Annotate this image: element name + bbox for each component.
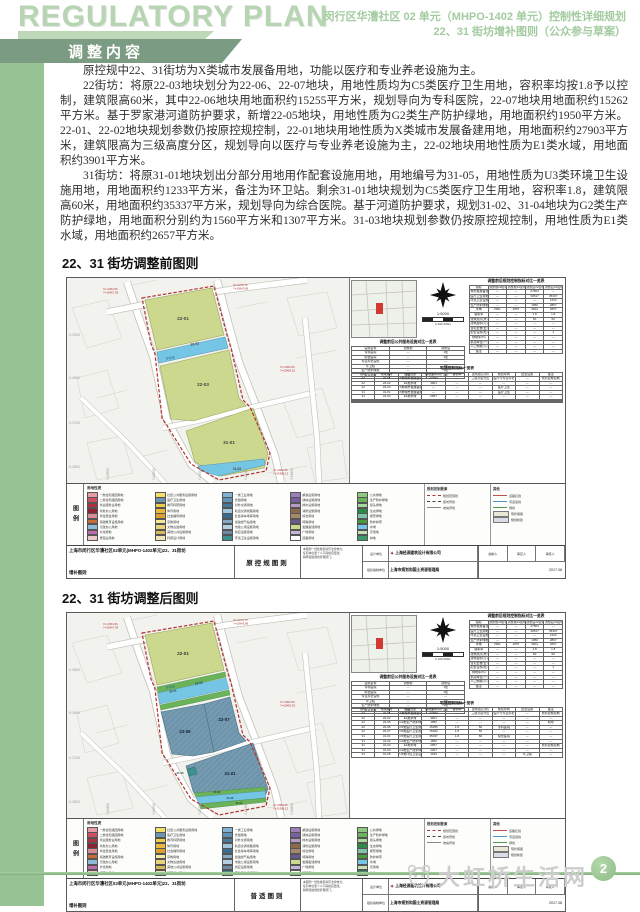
legend-item-label: 其他公共设施用地: [167, 530, 191, 534]
table-cell: 按原控规控制: [539, 712, 563, 717]
table-cell: —: [492, 753, 515, 758]
legend-control-title: 规划控制要素: [427, 486, 489, 491]
legend-line-label: 规划新建: [511, 853, 523, 857]
legend-line-label: 现状保留: [511, 847, 523, 851]
legend-item: 旅馆业用地: [87, 535, 152, 540]
svg-text:Y-16200: Y-16200: [198, 468, 202, 480]
table-cell: C5类医疗卫生用地: [398, 725, 421, 730]
legend-item-label: 基础教育设施用地: [100, 855, 124, 859]
table-cell: —: [539, 753, 563, 758]
legend-other-title: 其他: [493, 486, 564, 491]
map-legend: 图例 用地性质 一类住宅组团用地二类住宅组团用地商业服务业用地商务办公用地商住混…: [67, 483, 565, 545]
design-unit-value: ✦上海经源建筑设计有限公司: [389, 546, 478, 562]
table-cell: [398, 402, 421, 403]
table-cell: 机动车位(个): [470, 340, 489, 345]
table-row: 备注————: [470, 684, 563, 689]
plan-drawing-after-svg: 22-01 22-05 22-02 22-06 22-07 31-01 31-0…: [67, 613, 349, 818]
table-cell: 三级高度分区: [469, 377, 492, 382]
table-cell: 建筑面积(万㎡): [470, 657, 489, 662]
svg-text:22-07: 22-07: [218, 717, 230, 722]
legend-item-label: 加油加气站用地: [235, 855, 256, 859]
legend-item-label: 水域: [370, 860, 376, 864]
table-cell: —: [445, 753, 468, 758]
legend-item-label: 社会福利用地: [167, 514, 185, 518]
legend-item-label: 消防设施用地: [302, 844, 320, 848]
legend-item-label: 文物古迹用地: [167, 525, 185, 529]
table-row: 专科医院—1处: [352, 686, 465, 691]
staff-label-cell: 编制人: [479, 546, 508, 562]
table-cell: 环境卫生设施用地: [470, 299, 489, 304]
legend-item-label: 防护林带: [370, 855, 382, 859]
table-header-cell: 调整前31街坊: [507, 285, 526, 290]
table-header-cell: 用地面积(㎡): [422, 707, 445, 712]
body-paragraph: 31街坊：将原31-01地块划出分部分用地用作配套设施用地，用地编号为31-05…: [60, 169, 628, 244]
svg-text:Y-16200: Y-16200: [198, 803, 202, 815]
svg-text:Y=15643.89: Y=15643.89: [233, 622, 249, 626]
sheet-date: 2017.08: [479, 895, 565, 911]
note-line: 解释权属规划管理部门。: [303, 889, 360, 893]
legend-item-label: 广场用地: [302, 865, 314, 869]
table-row: 3131-05U3类环境卫生设施用地1233———环卫站—: [352, 753, 563, 758]
title-block-project: 上海市闵行区华漕社区02单元(MHPO-1402单元)22、31街坊 增补图则: [67, 546, 235, 578]
table-cell: 绿地率(%): [470, 336, 489, 341]
table-cell: —: [507, 684, 526, 689]
svg-text:Y=15467.09: Y=15467.09: [103, 291, 119, 295]
legend-other-items: 道路红线河道蓝线绿线现状保留规划新建: [493, 493, 564, 523]
legend-item-label: 轨道交通线路用地: [235, 509, 259, 513]
legend-line-label: 河道蓝线: [509, 835, 521, 839]
table-cell: 城市发展备建用地: [470, 625, 489, 630]
legend-item-label: 社会停车场库用地: [235, 849, 259, 853]
legend-swatch: [290, 535, 301, 541]
title-block: 上海市闵行区华漕社区02单元(MHPO-1402单元)22、31街坊 增补图则 …: [67, 545, 565, 578]
page-title: REGULATORY PLAN: [18, 0, 329, 34]
table-cell: 建筑面积(万㎡): [470, 322, 489, 327]
legend-swatch: [87, 535, 98, 541]
legend-line-label: 规划新建: [511, 518, 523, 522]
legend-line-label: 道路红线: [509, 829, 521, 833]
table-header-cell: 建筑限高(米): [469, 372, 492, 377]
legend-line-item: 地块界线: [427, 505, 489, 511]
table-cell: 住宅套数(套): [470, 661, 489, 666]
project-name: 上海市闵行区华漕社区02单元(MHPO-1402单元)22、31街坊: [69, 548, 232, 554]
legend-item-label: 公共绿地: [370, 493, 382, 497]
subtitle-line-1: 闵行区华漕社区 02 单元（MHPO-1402 单元）控制性详细规划: [323, 10, 626, 25]
legend-item-label: 商业服务业用地: [100, 503, 121, 507]
legend-line-sample: [427, 501, 441, 502]
legend-item-label: 综合用地: [302, 514, 314, 518]
legend-other-items: 道路红线河道蓝线绿线现状保留规划新建: [493, 828, 564, 858]
legend-item-label: 农用地: [370, 530, 379, 534]
legend-line-sample: [427, 830, 441, 831]
table-cell: 按原控规控制: [539, 744, 563, 749]
block-table-block: 地块控制指标一览表 街坊地块编号用地性质用地面积(㎡)容积率建筑限高(米)规划导…: [351, 701, 563, 816]
legend-item-label: 公共绿地: [370, 828, 382, 832]
legend-line-item: 规划新建: [493, 852, 564, 858]
legend-item-label: 商住混合用地: [100, 514, 118, 518]
svg-text:X-2700: X-2700: [69, 756, 80, 760]
plan-drawing-before-svg: 22-01 22-02 22-03 31-01 31-03 罗家港 X-2500…: [67, 278, 349, 483]
legend-title: 图例: [67, 484, 84, 545]
north-arrow-block: 1:5000 0 100 200m: [419, 280, 467, 338]
title-block-notes: 本图则一经批准即具有法律效力， 任何单位和个人不得擅自更改。 解释权属规划管理部…: [301, 879, 363, 911]
table-cell: 城市发展备建用地: [470, 290, 489, 295]
scale-ticks: 0 100 200m: [419, 657, 467, 661]
legend-item-label: 农用地: [370, 865, 379, 869]
legend-item-label: 特殊用地: [302, 855, 314, 859]
legend-item: 道路用地: [290, 535, 355, 540]
table-cell: 按原控规控制: [539, 377, 563, 382]
table-header-cell: 调整前31街坊: [507, 620, 526, 625]
title-underline-bar: [18, 31, 214, 40]
table-cell: 环境卫生设施用地: [470, 634, 489, 639]
table-cell: 建筑限高(米): [470, 652, 489, 657]
scale-ticks: 0 100 200m: [419, 322, 467, 326]
watermark-text: 大虹桥生活网: [438, 860, 588, 892]
table-header-cell: 调整前22街坊: [488, 285, 507, 290]
plan-drawing-before: 22-01 22-02 22-03 31-01 31-03 罗家港 X-2500…: [67, 278, 350, 483]
table-cell: [422, 402, 445, 403]
legend-title: 图例: [67, 819, 84, 880]
svg-text:X-2600: X-2600: [69, 711, 80, 715]
svg-text:31-03: 31-03: [233, 467, 241, 471]
legend-landuse-title: 用地性质: [87, 821, 422, 826]
legend-item-label: 通信设施用地: [302, 498, 320, 502]
legend-line-label: 地块界线: [443, 506, 455, 510]
legend-item-label: 商务办公用地: [100, 844, 118, 848]
compare-table-block: 调整前后规划控制指标对比一览表 指标调整前22街坊调整前31街坊调整后22街坊调…: [469, 614, 563, 689]
design-unit-label: 设计单位: [363, 546, 389, 562]
legend-line-sample: [493, 517, 509, 523]
svg-text:22-03: 22-03: [197, 382, 209, 387]
org-unit-value: 上海市规划和国土资源管理局: [389, 895, 478, 911]
project-name: 上海市闵行区华漕社区02单元(MHPO-1402单元)22、31街坊: [69, 881, 232, 887]
legend-line-label: 绿线: [509, 841, 515, 845]
legend-item-label: 一类工业用地: [235, 828, 253, 832]
title-block-notes: 本图则一经批准即具有法律效力， 任何单位和个人不得擅自更改。 解释权属规划管理部…: [301, 546, 363, 578]
legend-line-sample: [427, 495, 441, 496]
legend-item-label: 宗教用地: [167, 855, 179, 859]
org-unit-label: 组织编制单位: [363, 895, 389, 911]
legend-item-label: 排水设施用地: [302, 838, 320, 842]
svg-text:Y-16000: Y-16000: [152, 468, 156, 480]
table-cell: 人口规模(人): [470, 345, 489, 350]
legend-line-label: 规划范围线: [443, 494, 458, 498]
table-cell: [445, 402, 468, 403]
svg-text:Y=15386.12: Y=15386.12: [273, 472, 289, 476]
svg-text:X-2600: X-2600: [69, 376, 80, 380]
table-cell: —: [507, 349, 526, 354]
legend-line-label: 街坊界线: [443, 500, 455, 504]
table-header-cell: 建筑限高(米): [469, 707, 492, 712]
legend-item-label: 基础教育设施用地: [100, 520, 124, 524]
content-area: 原控规中22、31街坊为X类城市发展备用地，功能以医疗和专业养老设施为主。 22…: [60, 64, 628, 912]
title-block-orgs: 设计单位 ✦上海经源建筑设计有限公司 组织编制单位 上海市规划和国土资源管理局: [363, 546, 479, 578]
scale-label: 1:5000: [419, 646, 467, 651]
design-unit-label: 设计单位: [363, 879, 389, 895]
legend-item-label: 商住混合用地: [100, 849, 118, 853]
legend-line-label: 道路红线: [509, 494, 521, 498]
legend-item-label: 仓储用地: [235, 498, 247, 502]
svg-text:X-2800: X-2800: [69, 465, 80, 469]
legend-item-label: 医疗卫生用地: [167, 833, 185, 837]
legend-item-label: 文物古迹用地: [167, 860, 185, 864]
legend-chip-grid: 一类住宅组团用地二类住宅组团用地商业服务业用地商务办公用地商住混合用地基础教育设…: [87, 827, 422, 877]
org-unit-value: 上海市规划和国土资源管理局: [389, 562, 478, 578]
legend-item-label: 其他公共设施用地: [167, 865, 191, 869]
legend-line-sample: [493, 507, 507, 508]
plan-subtitle: 闵行区华漕社区 02 单元（MHPO-1402 单元）控制性详细规划 22、31…: [323, 10, 626, 40]
legend-item-label: 仓储用地: [235, 833, 247, 837]
legend-control-group: 规划控制要素 规划范围线街坊界线地块界线: [424, 484, 490, 545]
scale-label: 1:5000: [419, 311, 467, 316]
legend-item: 林地: [357, 535, 422, 540]
block-control-table: 街坊地块编号用地性质用地面积(㎡)容积率建筑限高(米)规划导向配套设施备注222…: [351, 707, 563, 759]
block-table-block: 地块控制指标一览表 街坊地块编号用地性质用地面积(㎡)容积率建筑限高(米)规划导…: [351, 366, 563, 481]
svg-text:Y-15800: Y-15800: [106, 803, 110, 815]
legend-item-label: 科研设计用地: [167, 536, 185, 540]
design-logo-icon: ✦: [390, 551, 394, 557]
svg-text:22-01: 22-01: [177, 316, 189, 321]
svg-text:Y-15800: Y-15800: [106, 468, 110, 480]
section-heading-after: 22、31 街坊调整后图则: [62, 588, 628, 607]
legend-swatch: [222, 535, 233, 541]
table-cell: 医疗卫生用地: [470, 629, 489, 634]
legend-chip-grid: 一类住宅组团用地二类住宅组团用地商业服务业用地商务办公用地商住混合用地基础教育设…: [87, 492, 422, 542]
svg-text:Y-16000: Y-16000: [152, 803, 156, 815]
legend-item-label: 文化用地: [100, 865, 112, 869]
svg-text:X-2800: X-2800: [69, 800, 80, 804]
legend-item-label: 二类住宅组团用地: [100, 498, 124, 502]
table-cell: 配套设施(处): [470, 331, 489, 336]
table-cell: 生产防护绿地: [470, 638, 489, 643]
table-cell: X类城市发展备建用地: [398, 377, 421, 382]
svg-text:X-2500: X-2500: [69, 668, 80, 672]
map-right-panel: 1:5000 0 100 200m 调整前后规划控制指标对比一览表 指标调整前2…: [349, 278, 565, 483]
table-cell: C5类医疗卫生用地: [398, 730, 421, 735]
legend-swatch: [155, 535, 166, 541]
sheet-date: 2017.08: [479, 562, 565, 578]
legend-line-label: 街坊界线: [443, 835, 455, 839]
table-header-cell: 用地面积(㎡): [422, 372, 445, 377]
legend-item-label: 广场用地: [302, 530, 314, 534]
legend-landuse-title: 用地性质: [87, 486, 422, 491]
legend-item-label: 市政公用设施用地: [235, 525, 259, 529]
legend-other-title: 其他: [493, 821, 564, 826]
table-cell: 医疗与专业养老: [492, 712, 515, 717]
legend-item-label: 防护林带: [370, 520, 382, 524]
table-row: 备注————: [470, 349, 563, 354]
table-cell: [352, 402, 375, 403]
north-arrow-icon: [428, 615, 458, 645]
table-cell: —: [488, 349, 507, 354]
legend-item-label: 轨道交通线路用地: [235, 844, 259, 848]
title-block-staff: 编制人审定人审核人 2017.08: [479, 546, 565, 578]
legend-item-label: 水域: [370, 525, 376, 529]
table-cell: [539, 402, 563, 403]
legend-line-label: 绿线: [509, 506, 515, 510]
north-arrow-block: 1:5000 0 100 200m: [419, 615, 467, 673]
title-block-project: 上海市闵行区华漕社区02单元(MHPO-1402单元)22、31街坊 增补图则: [67, 879, 235, 911]
table-cell: X类城市发展备用地: [398, 386, 421, 391]
staff-label-cell: 审核人: [536, 546, 565, 562]
legend-line-sample: [493, 501, 507, 502]
legend-item-label: 一类住宅组团用地: [100, 493, 124, 497]
legend-item-label: 邮政设施用地: [302, 828, 320, 832]
legend-swatch: [357, 535, 368, 541]
legend-line-sample: [427, 836, 441, 837]
watermark: 大虹桥生活网: [406, 860, 588, 892]
legend-line-label: 河道蓝线: [509, 500, 521, 504]
body-paragraph: 22街坊：将原22-03地块划分为22-06、22-07地块，用地性质均为C5类…: [60, 79, 628, 169]
note-line: 解释权属规划管理部门。: [303, 556, 360, 560]
legend-item-label: 社区公共服务设施用地: [167, 828, 197, 832]
svg-text:Y-16400: Y-16400: [244, 468, 248, 480]
locator-highlight: [376, 303, 383, 314]
svg-text:Y=15643.89: Y=15643.89: [233, 287, 249, 291]
legend-item-label: 二类住宅组团用地: [100, 833, 124, 837]
legend-line-sample: [493, 852, 509, 858]
legend-line-sample: [427, 507, 441, 508]
project-subname: 增补图则: [69, 570, 87, 576]
legend-item-label: 体育用地: [167, 844, 179, 848]
org-unit-label: 组织编制单位: [363, 562, 389, 578]
page-number-badge: 2: [591, 856, 616, 881]
table-cell: 医疗卫生用地: [470, 294, 489, 299]
table-cell: 31-05: [375, 753, 398, 758]
legend-item-label: 生态绿地: [370, 509, 382, 513]
legend-line-sample: [493, 495, 507, 496]
svg-text:Y-16400: Y-16400: [244, 803, 248, 815]
table-cell: X类城市发展备用地: [398, 390, 421, 395]
legend-item-label: 社区公共服务设施用地: [167, 493, 197, 497]
staff-label-cell: 审定人: [508, 546, 537, 562]
legend-landuse-group: 用地性质 一类住宅组团用地二类住宅组团用地商业服务业用地商务办公用地商住混合用地…: [84, 484, 424, 545]
legend-item-label: 文化用地: [100, 530, 112, 534]
table-cell: X类城市发展备建用地: [398, 712, 421, 717]
svg-text:31-04: 31-04: [236, 801, 243, 805]
table-header-cell: 调整前22街坊: [488, 620, 507, 625]
legend-line-label: 地块界线: [443, 841, 455, 845]
table-cell: —: [544, 349, 563, 354]
legend-line-sample: [493, 842, 507, 843]
legend-item-label: 供应设施用地: [235, 865, 253, 869]
locator-map: [351, 615, 417, 673]
legend-line-label: 现状保留: [511, 512, 523, 516]
compare-table-block: 调整前后规划控制指标对比一览表 指标调整前22街坊调整前31街坊调整后22街坊调…: [469, 279, 563, 354]
legend-item-label: 供应设施用地: [235, 530, 253, 534]
svg-text:Y-16600: Y-16600: [290, 803, 294, 815]
svg-text:Y=15467.09: Y=15467.09: [103, 626, 119, 630]
legend-item-label: 生产防护绿地: [370, 833, 388, 837]
legend-control-items: 规划范围线街坊界线地块界线: [427, 828, 489, 846]
map-sheet-before: 22-01 22-02 22-03 31-01 31-03 罗家港 X-2500…: [66, 277, 566, 579]
table-row: [352, 402, 563, 403]
table-header-cell: 调整后31街坊: [544, 620, 563, 625]
legend-landuse-group: 用地性质 一类住宅组团用地二类住宅组团用地商业服务业用地商务办公用地商住混合用地…: [84, 819, 424, 880]
map-right-panel: 1:5000 0 100 200m 调整前后规划控制指标对比一览表 指标调整前2…: [349, 613, 565, 818]
table-cell: 备注: [470, 684, 489, 689]
table-cell: C5类医疗卫生用地: [398, 735, 421, 740]
legend-item-label: 一类工业用地: [235, 493, 253, 497]
legend-item-label: 生态绿地: [370, 844, 382, 848]
svg-text:31-02: 31-02: [214, 790, 221, 794]
legend-item-label: 医疗卫生用地: [167, 498, 185, 502]
legend-item-label: 发展备建用地: [302, 525, 320, 529]
legend-control-title: 规划控制要素: [427, 821, 489, 826]
legend-item-label: 街头绿地: [370, 838, 382, 842]
table-cell: G2类生产防护绿地: [398, 739, 421, 744]
svg-text:Y-16600: Y-16600: [290, 468, 294, 480]
legend-item-label: 邮政设施用地: [302, 493, 320, 497]
table-cell: —: [544, 684, 563, 689]
legend-item-label: 教育科研用地: [167, 838, 185, 842]
sheet-type: 普适图则: [235, 879, 301, 911]
legend-line-item: 地块界线: [427, 840, 489, 846]
plan-drawing-after: 22-01 22-05 22-02 22-06 22-07 31-01 31-0…: [67, 613, 350, 818]
legend-item-label: 行政办公用地: [100, 860, 118, 864]
legend-item-label: 市政公用设施用地: [235, 860, 259, 864]
legend-item-label: 体育用地: [167, 509, 179, 513]
legend-item-label: 街头绿地: [370, 503, 382, 507]
table-cell: 人口规模(人): [470, 680, 489, 685]
table-row: 综合医院—1处: [352, 355, 465, 360]
legend-item-label: 行政办公用地: [100, 525, 118, 529]
legend-item: 环境卫生设施用地: [222, 535, 287, 540]
table-header-cell: 调整后22街坊: [525, 285, 544, 290]
table-cell: U3类环境卫生设施用地: [398, 753, 421, 758]
legend-item-label: 特殊用地: [302, 520, 314, 524]
legend-line-sample: [493, 830, 507, 831]
legend-item-label: 宗教用地: [167, 520, 179, 524]
legend-item-label: 商业服务业用地: [100, 838, 121, 842]
svg-text:22-06: 22-06: [179, 729, 191, 734]
legend-item-label: 商务办公用地: [100, 509, 118, 513]
legend-other-group: 其他 道路红线河道蓝线绿线现状保留规划新建: [490, 484, 565, 545]
design-logo-icon: ✦: [390, 884, 394, 890]
svg-text:Y=15482.52: Y=15482.52: [280, 369, 296, 373]
svg-text:X-2500: X-2500: [69, 333, 80, 337]
legend-item-label: 环境卫生设施用地: [235, 536, 259, 540]
svg-text:31-01: 31-01: [223, 440, 235, 445]
svg-text:X-2700: X-2700: [69, 421, 80, 425]
table-cell: 绿地率(%): [470, 671, 489, 676]
table-cell: 配套设施(处): [470, 666, 489, 671]
table-cell: [469, 402, 492, 403]
legend-item-label: 旅馆业用地: [100, 536, 115, 540]
legend-item-label: 发展备建用地: [302, 860, 320, 864]
legend-line-item: 规划新建: [493, 517, 564, 523]
project-subname: 增补图则: [69, 903, 87, 909]
legend-item-label: 道路用地: [302, 536, 314, 540]
legend-item-label: 加油加气站用地: [235, 520, 256, 524]
svg-text:Y=15482.52: Y=15482.52: [280, 704, 296, 708]
legend-item-label: 楔形绿地: [370, 514, 382, 518]
svg-text:22-01: 22-01: [177, 651, 189, 656]
legend-item: 科研设计用地: [155, 535, 220, 540]
table-cell: 建筑限高(米): [470, 317, 489, 322]
table-cell: —: [488, 684, 507, 689]
table-cell: [492, 402, 515, 403]
body-paragraph: 原控规中22、31街坊为X类城市发展备用地，功能以医疗和专业养老设施为主。: [60, 64, 628, 79]
table-header-cell: 调整后22街坊: [525, 620, 544, 625]
legend-item-label: 消防设施用地: [302, 509, 320, 513]
compare-table: 指标调整前22街坊调整前31街坊调整后22街坊调整后31街坊城市发展备建用地——…: [469, 620, 563, 690]
subtitle-line-2: 22、31 街坊增补图则（公众参与草案）: [323, 25, 626, 40]
table-header-cell: 调整后31街坊: [544, 285, 563, 290]
table-row: 医疗卫生用地——3051735337: [470, 294, 563, 299]
legend-item-label: 通信设施用地: [302, 833, 320, 837]
